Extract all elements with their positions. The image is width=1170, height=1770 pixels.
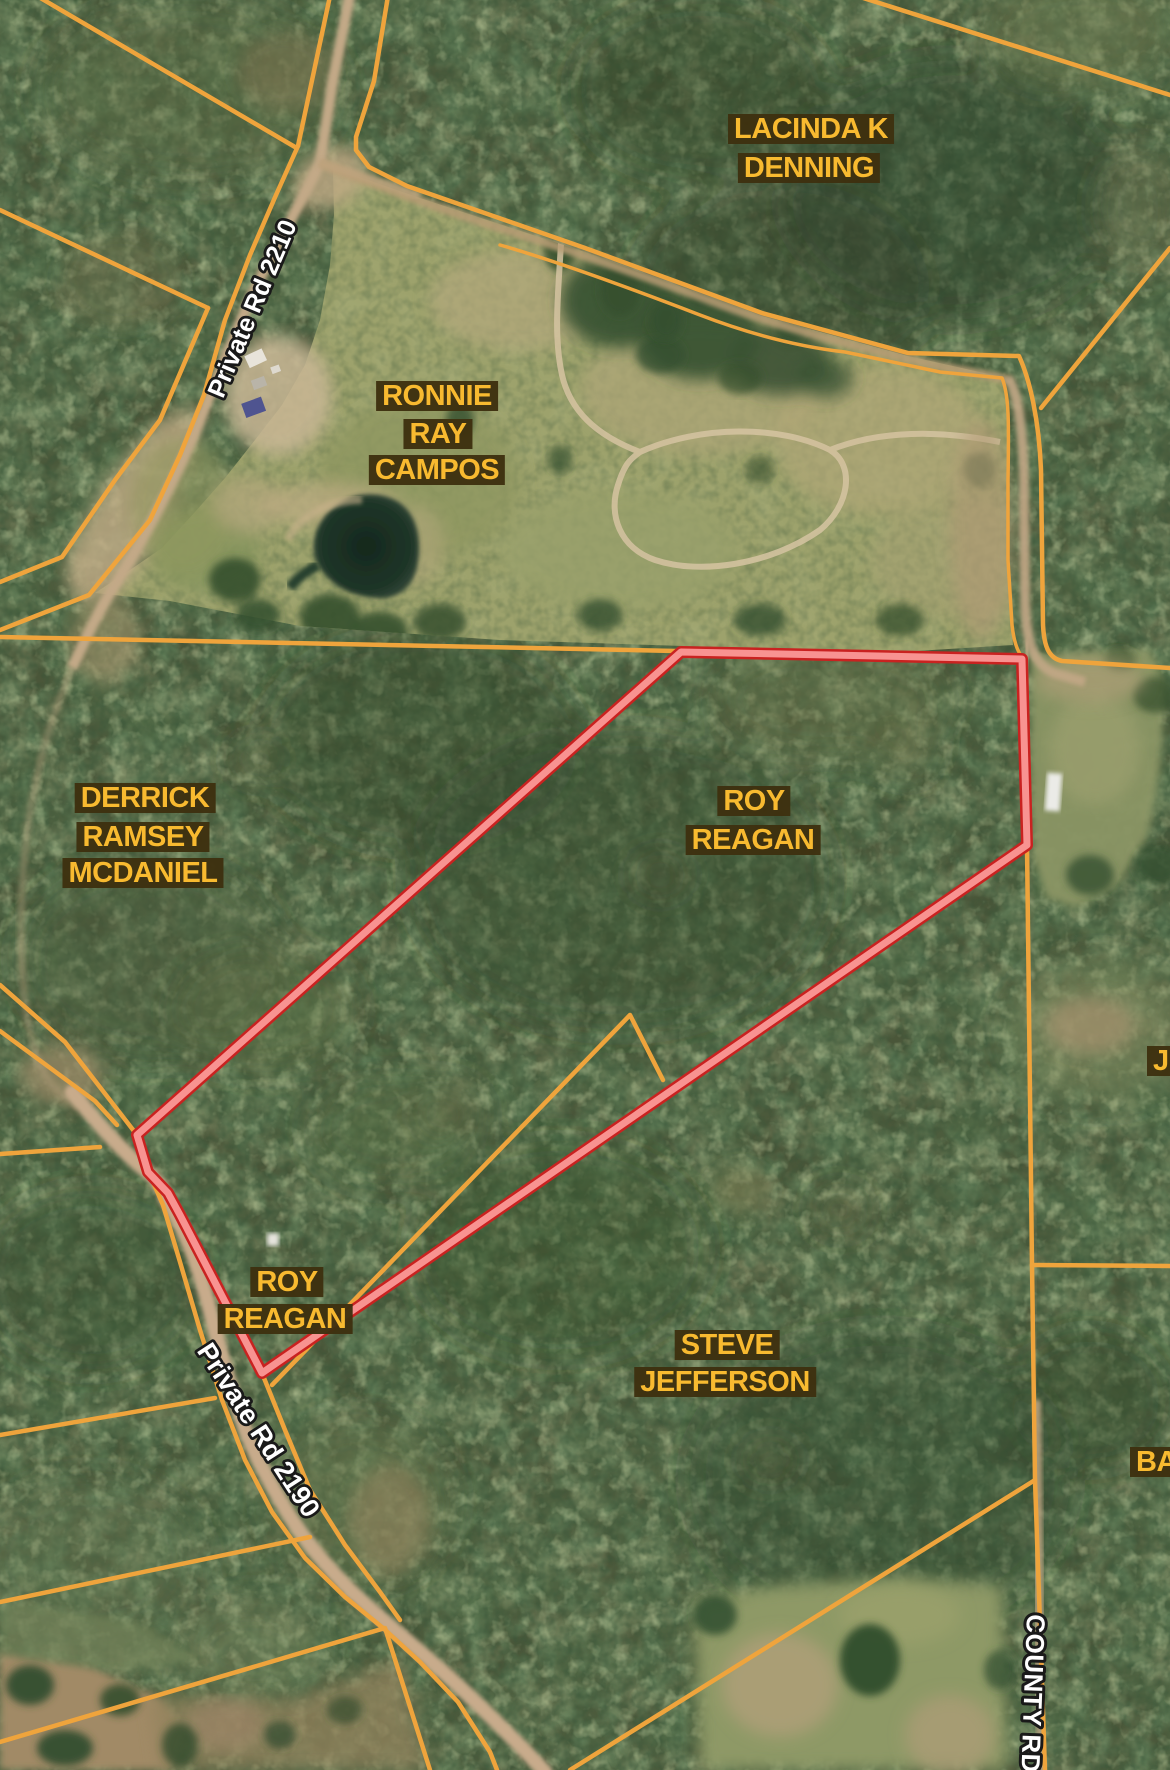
svg-text:COUNTY RD: COUNTY RD — [1015, 1614, 1051, 1770]
